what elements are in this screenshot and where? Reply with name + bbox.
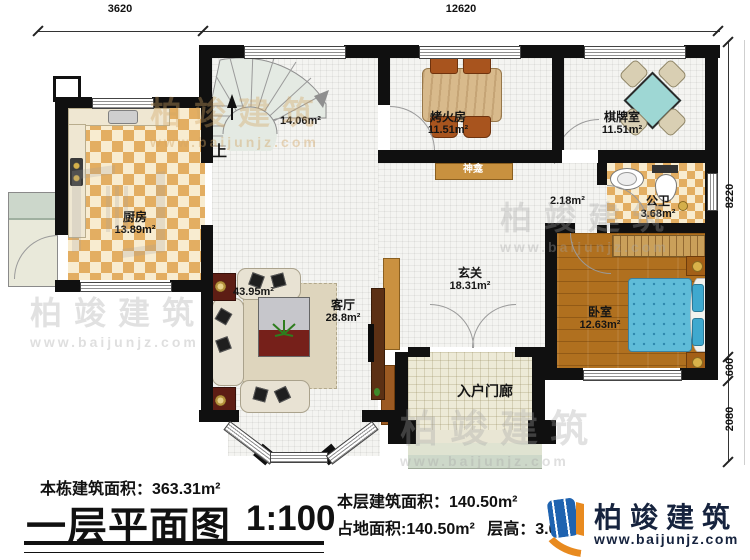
kitchen-floor: [68, 108, 205, 280]
window: [583, 370, 682, 381]
tv: [368, 324, 374, 362]
window: [584, 46, 686, 59]
wall-segment: [597, 163, 607, 185]
stair-hall-area-label: 14.06m²: [280, 115, 321, 128]
chess-room-label: 棋牌室11.51m²: [582, 110, 662, 138]
wall-segment: [552, 58, 564, 150]
dim-right-top: 8220: [724, 166, 736, 226]
dim-right-mid: 600: [724, 347, 736, 387]
stove: [70, 158, 83, 186]
wall-segment: [378, 58, 390, 105]
brand-logo: [540, 497, 588, 551]
step: [408, 455, 542, 469]
bathroom-sink-bowl: [617, 172, 637, 186]
bay-window-center: [270, 452, 328, 463]
bed-mattress: [628, 278, 692, 352]
wall-segment: [55, 97, 92, 108]
wall-segment: [55, 108, 68, 235]
kitchen-label: 厨房13.89m²: [95, 210, 175, 238]
footprint-row: 占地面积:140.50m² 层高：3.0m: [337, 515, 572, 539]
curved-stairs: [208, 46, 343, 151]
entry-porch-label: 入户门廊: [430, 383, 540, 400]
shrine-label: 神龛: [435, 164, 511, 176]
logo-flame: [576, 502, 584, 536]
wall-right-exterior: [705, 45, 718, 380]
living-combined-area-label: 43.95m²: [233, 286, 274, 299]
frame-line: [744, 40, 745, 465]
wall-segment: [545, 223, 575, 233]
side-porch-step: [9, 193, 57, 220]
bathroom-label: 公卫3.68m²: [628, 194, 688, 222]
footprint-area: 占地面积:140.50m²: [337, 521, 475, 538]
wall-segment: [519, 45, 584, 58]
window: [80, 282, 172, 292]
porch-steps: [408, 430, 542, 468]
wardrobe: [612, 235, 707, 257]
window: [244, 46, 346, 59]
wall-segment: [597, 225, 607, 233]
foyer-label: 玄关18.31m²: [430, 266, 510, 294]
dim-top-left: 3620: [70, 3, 170, 15]
wall-segment: [362, 410, 402, 422]
wall-segment: [545, 368, 583, 380]
wall-segment: [344, 45, 419, 58]
tv-partition: [383, 258, 400, 350]
stair-up-label: 上: [212, 143, 227, 161]
wall-segment: [598, 150, 718, 163]
passage-area-label: 2.18m²: [550, 195, 585, 208]
window: [707, 173, 718, 211]
dim-top-right: 12620: [411, 3, 511, 15]
wall-segment: [408, 347, 430, 357]
wall-segment: [545, 233, 557, 380]
porch-column: [388, 420, 416, 444]
bedroom-label: 卧室12.63m²: [565, 305, 635, 333]
dim-right-bottom: 2080: [724, 389, 736, 449]
floor-area: 本层建筑面积：140.50m²: [337, 488, 518, 512]
wall-segment: [378, 150, 562, 163]
wall-segment: [680, 368, 718, 380]
wall-segment: [55, 280, 80, 292]
living-room-label: 客厅28.8m²: [308, 298, 378, 326]
wall-segment: [610, 223, 718, 233]
dim-line-top: [38, 31, 720, 32]
toilet-tank: [652, 165, 678, 173]
wall-segment: [199, 410, 239, 422]
wall-segment: [201, 225, 213, 410]
fire-room-label: 烤火房11.51m²: [408, 110, 488, 138]
step: [408, 430, 542, 444]
window: [419, 46, 521, 59]
plant: [259, 298, 309, 356]
brand-site: www.baijunjz.com: [594, 531, 739, 547]
plan-scale: 1:100: [246, 499, 336, 539]
floor-plan-page: 3620 12620 8220 600 2080 14.06m² 上 厨房13.…: [0, 0, 750, 560]
pillow-left: [692, 284, 704, 312]
wall-segment: [199, 58, 212, 97]
wall-segment: [199, 45, 244, 58]
window: [92, 98, 154, 109]
pillow-right: [692, 318, 704, 346]
porch-column: [528, 420, 556, 444]
cabinet-plant: [374, 388, 380, 396]
watermark: 柏竣建筑 www.baijunjz.com: [30, 288, 206, 350]
coffee-table: [258, 297, 310, 357]
sofa-bottom: [240, 380, 310, 413]
kitchen-sink: [108, 110, 138, 124]
brand-name: 柏竣建筑: [594, 496, 738, 536]
title-underline: [24, 541, 324, 553]
